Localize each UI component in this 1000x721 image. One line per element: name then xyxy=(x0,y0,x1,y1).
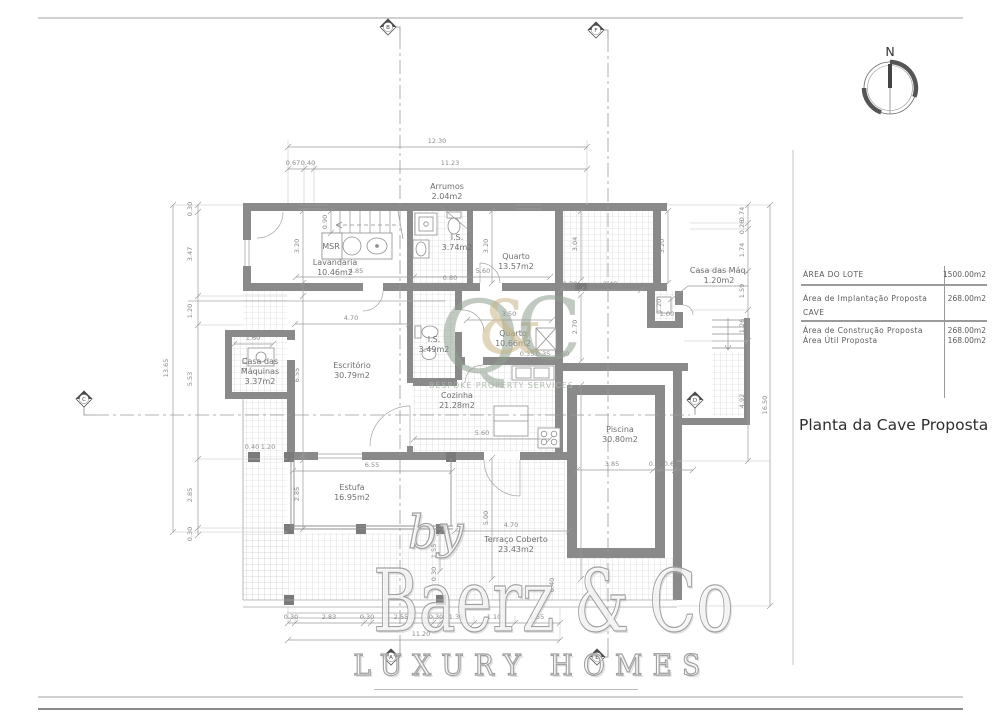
room-label: Lavandaria xyxy=(313,258,358,267)
room-label: Escritório xyxy=(333,360,371,370)
dim-label: 4.70 xyxy=(344,314,358,322)
room-label: 3.37m2 xyxy=(245,377,276,386)
dim-label: 0.90 xyxy=(321,215,329,229)
room-label: 21.28m2 xyxy=(439,401,475,410)
dim-label: 11.23 xyxy=(441,159,460,167)
cave-label: CAVE xyxy=(803,308,824,317)
dim-label: 0.74 xyxy=(738,207,746,221)
area-lote-label: ÁREA DO LOTE xyxy=(803,270,864,279)
room-label: Casa das Máq. xyxy=(690,266,748,275)
dim-label: 0.30 xyxy=(360,613,374,621)
dim-label: 8.00 xyxy=(571,473,579,487)
dim-label: 5.53 xyxy=(186,372,194,386)
area-construcao-label: Área de Construção Proposta xyxy=(803,326,923,335)
room-label: 3.74m2 xyxy=(442,243,473,252)
room-label: Arrumos xyxy=(430,182,464,191)
dim-label: 0.26 xyxy=(738,220,746,234)
dim-label: 2.85 xyxy=(293,487,301,501)
dim-label: 1.20 xyxy=(655,299,663,313)
dim-label: 3.47 xyxy=(186,247,194,261)
dim-label: 16.50 xyxy=(761,396,769,415)
drawing-sheet: N Arrumos2.04m2Lavandaria10.46m2I.S.3.74… xyxy=(0,0,1000,721)
section-marker-letter: C xyxy=(82,397,86,403)
dim-label: 1.59 xyxy=(738,284,746,298)
dim-label: 6.55 xyxy=(293,368,301,382)
qc-logo-tagline: BESPOKE PROPERTY SERVICES xyxy=(429,381,574,390)
dim-label: 0.30 xyxy=(186,202,194,216)
room-label: Quarto xyxy=(502,252,530,261)
dim-label: 2.85 xyxy=(186,488,194,502)
drawing-title: Planta da Cave Proposta xyxy=(799,416,988,434)
section-marker-letter: B xyxy=(386,25,390,31)
room-label: 13.57m2 xyxy=(498,262,534,271)
dim-label: 12.30 xyxy=(428,137,447,145)
section-marker-C: C xyxy=(76,391,92,407)
dim-label: 13.65 xyxy=(162,359,170,378)
room-label: 2.04m2 xyxy=(432,192,463,201)
dim-label: 3.20 xyxy=(293,239,301,253)
dim-label: 3.04 xyxy=(571,237,579,251)
dim-label: 0.30 xyxy=(186,527,194,541)
room-label: I.S. xyxy=(451,233,464,242)
area-implantacao-value: 268.00m2 xyxy=(926,294,986,303)
dim-label: 2.83 xyxy=(322,613,336,621)
room-label: 30.80m2 xyxy=(602,435,638,444)
room-label: Estufa xyxy=(339,483,364,492)
room-label: MSR xyxy=(322,242,340,251)
dim-label: 3.20 xyxy=(482,239,490,253)
title-block-rule xyxy=(801,320,987,322)
dim-label: 1.20 xyxy=(261,443,275,451)
dim-label: 6.55 xyxy=(365,461,379,469)
dim-label: 0.60 xyxy=(664,460,678,468)
dim-label: 2.48 xyxy=(603,280,617,288)
dim-label: 4.85 xyxy=(349,267,363,275)
dim-label: 4.92 xyxy=(738,394,746,408)
room-label: 10.46m2 xyxy=(317,268,353,277)
dim-label: 3.20 xyxy=(658,239,666,253)
dim-label: 0.30 xyxy=(649,460,663,468)
dim-label: 5.60 xyxy=(476,267,490,275)
watermark-tagline: LUXURY HOMES xyxy=(353,648,657,682)
room-label: 1.20m2 xyxy=(704,276,735,285)
room-label: Piscina xyxy=(606,425,634,434)
area-construcao-value: 268.00m2 xyxy=(926,326,986,335)
dim-label: 0.30 xyxy=(284,613,298,621)
section-marker-letter: F xyxy=(594,28,597,34)
room-label: 16.95m2 xyxy=(334,493,370,502)
watermark-brand: Baerz & Co xyxy=(373,552,647,652)
dim-label: 1.60 xyxy=(246,334,260,342)
watermark-rule xyxy=(374,689,638,690)
dim-label: 0.67 xyxy=(286,159,300,167)
section-marker-letter: D xyxy=(693,398,697,404)
dim-label: 3.85 xyxy=(605,460,619,468)
dim-label: 4.70 xyxy=(504,521,518,529)
qc-logo-c: C xyxy=(516,287,582,373)
compass-north-label: N xyxy=(885,44,894,59)
dim-label: 1.26 xyxy=(738,319,746,333)
dim-label: 1.74 xyxy=(738,243,746,257)
area-util-value: 168.00m2 xyxy=(926,336,986,345)
title-block-rule xyxy=(801,284,987,286)
compass-rose: N xyxy=(864,44,916,114)
section-marker-B: B xyxy=(380,19,396,35)
area-implantacao-label: Área de Implantação Proposta xyxy=(803,294,927,303)
dim-label: 2.11 xyxy=(241,357,249,371)
dim-label: 0.40 xyxy=(245,443,259,451)
dim-label: 5.60 xyxy=(475,429,489,437)
area-lote-value: 1500.00m2 xyxy=(926,270,986,279)
dim-label: 1.20 xyxy=(186,304,194,318)
dim-label: 5.00 xyxy=(482,511,490,525)
watermark-by: by xyxy=(408,505,463,559)
dim-label: 0.40 xyxy=(301,159,315,167)
room-label: Terraço Coberto xyxy=(483,535,548,544)
room-label: 30.79m2 xyxy=(334,371,370,380)
section-marker-F: F xyxy=(588,22,604,38)
section-marker-D: D xyxy=(687,392,703,408)
area-util-label: Área Útil Proposta xyxy=(803,336,878,345)
